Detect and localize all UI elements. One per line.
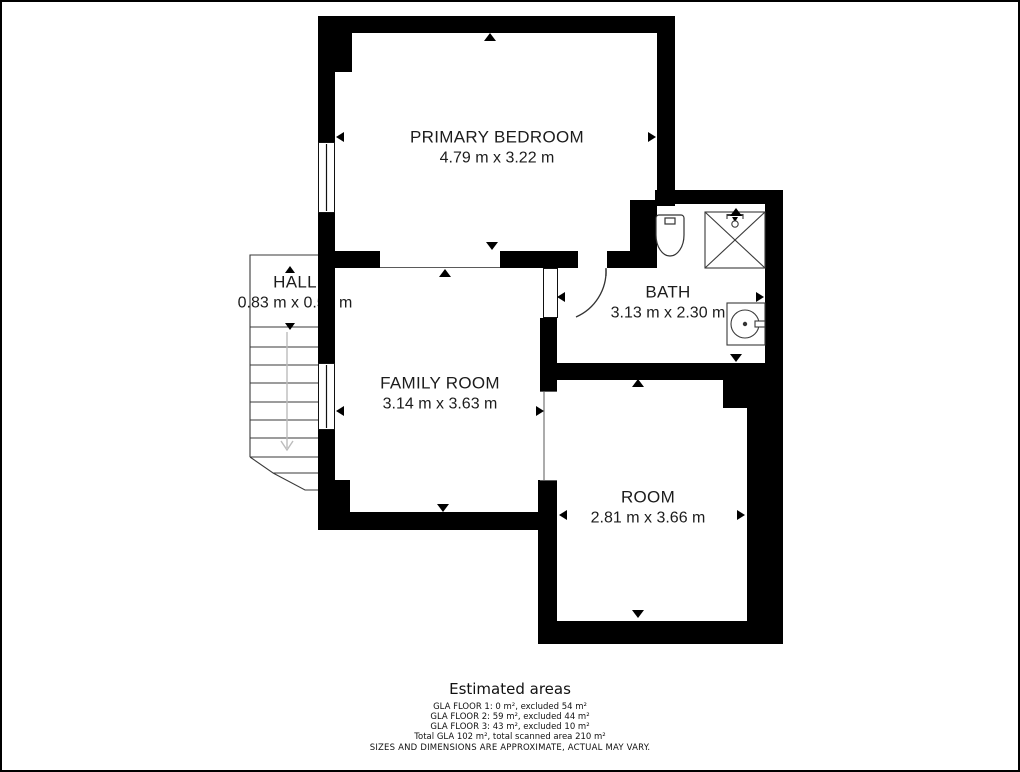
shower-symbol xyxy=(705,212,765,268)
sink-symbol xyxy=(727,303,765,345)
door-arc xyxy=(576,268,606,317)
plan-graphics xyxy=(0,0,1020,772)
opening-threshold xyxy=(380,268,557,481)
floor-plan: PRIMARY BEDROOM 4.79 m x 3.22 m HALL 0.8… xyxy=(0,0,1020,772)
toilet-symbol xyxy=(656,215,684,256)
stairs-direction-arrow xyxy=(281,332,293,450)
dimension-arrows xyxy=(285,33,764,618)
stairs xyxy=(250,255,318,490)
